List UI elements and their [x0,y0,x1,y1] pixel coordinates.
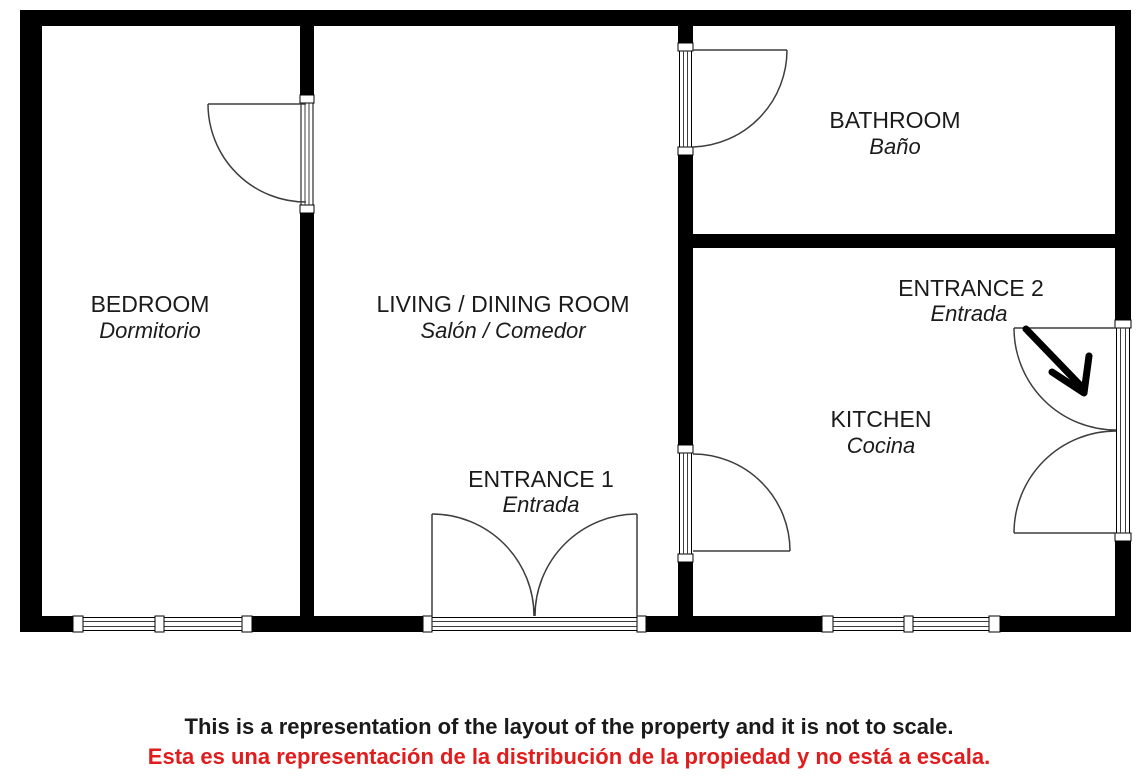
floor-plan-page: BEDROOM Dormitorio LIVING / DINING ROOM … [0,0,1138,783]
wall-bottom-segment [252,616,423,632]
kitchen-window [822,616,1000,632]
door-jamb [678,147,693,155]
window-jamb [242,616,252,632]
bedroom-label: BEDROOM [91,291,210,317]
kitchen-label-es: Cocina [847,433,915,458]
floor-plan-drawing: BEDROOM Dormitorio LIVING / DINING ROOM … [0,0,1138,783]
door-jamb [1115,533,1131,541]
bathroom-label: BATHROOM [829,107,960,133]
window-jamb [989,616,1000,632]
entrance-2-label-es: Entrada [930,301,1007,326]
wall-living-bathroom-stub [678,10,693,43]
room-labels: BEDROOM Dormitorio LIVING / DINING ROOM … [91,107,1044,517]
disclaimer-english: This is a representation of the layout o… [0,714,1138,740]
wall-top [20,10,1131,26]
wall-left [20,10,42,632]
door-panel [301,103,313,205]
living-room-label-es: Salón / Comedor [420,318,587,343]
door-jamb [300,95,314,103]
door-jamb [678,43,693,51]
door-jamb [678,445,693,453]
entrance-1-label: ENTRANCE 1 [468,466,614,492]
wall-bottom-segment [1000,616,1131,632]
wall-right-upper [1115,10,1131,320]
bathroom-label-es: Baño [869,134,920,159]
entrance-1-label-es: Entrada [502,492,579,517]
entrance-2-label: ENTRANCE 2 [898,275,1044,301]
window-mullion [904,616,913,632]
kitchen-label: KITCHEN [831,406,932,432]
wall-living-kitchen-lower [678,562,693,632]
entrance-2-door [1014,320,1131,541]
door-swing-arc [432,514,534,616]
window-jamb [822,616,833,632]
wall-bedroom-living-upper [300,10,314,95]
door-panel [680,453,692,554]
bedroom-label-es: Dormitorio [99,318,200,343]
wall-bottom-segment [646,616,822,632]
door-jamb [300,205,314,213]
entrance-1-door [423,514,646,632]
door-swing-arc [1014,431,1116,533]
door-swing-arc [208,104,306,202]
door-threshold [432,618,637,631]
door-jamb [637,616,646,632]
door-swing-arc [535,514,637,616]
wall-living-kitchen-mid [678,155,693,445]
window-mullion [155,616,164,632]
kitchen-door [678,445,790,562]
bathroom-door [678,43,787,155]
door-swing-arc [693,50,787,147]
window-jamb [73,616,83,632]
door-jamb [1115,320,1131,328]
door-jamb [678,554,693,562]
door-panel [680,51,692,147]
living-room-label: LIVING / DINING ROOM [376,291,629,317]
wall-bedroom-living-lower [300,213,314,632]
bedroom-window [73,616,252,632]
bedroom-door [208,95,314,213]
door-jamb [423,616,432,632]
wall-bathroom-kitchen [678,234,1131,248]
door-threshold [1117,328,1130,533]
door-swing-arc [693,454,790,551]
wall-bottom-segment [20,616,73,632]
entrance-2-arrow-icon [1026,329,1089,393]
disclaimer-spanish: Esta es una representación de la distrib… [0,744,1138,770]
